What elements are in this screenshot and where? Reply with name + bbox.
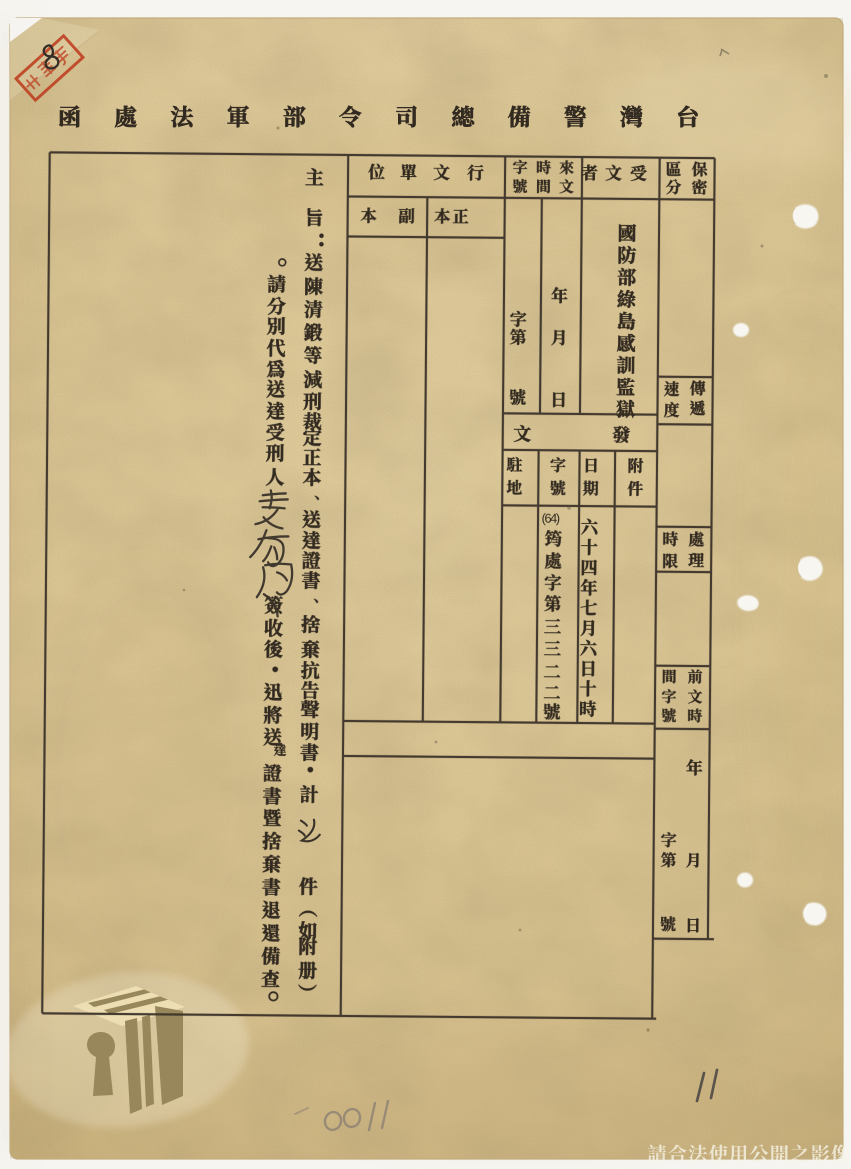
svg-text:(64): (64) [541,511,559,526]
